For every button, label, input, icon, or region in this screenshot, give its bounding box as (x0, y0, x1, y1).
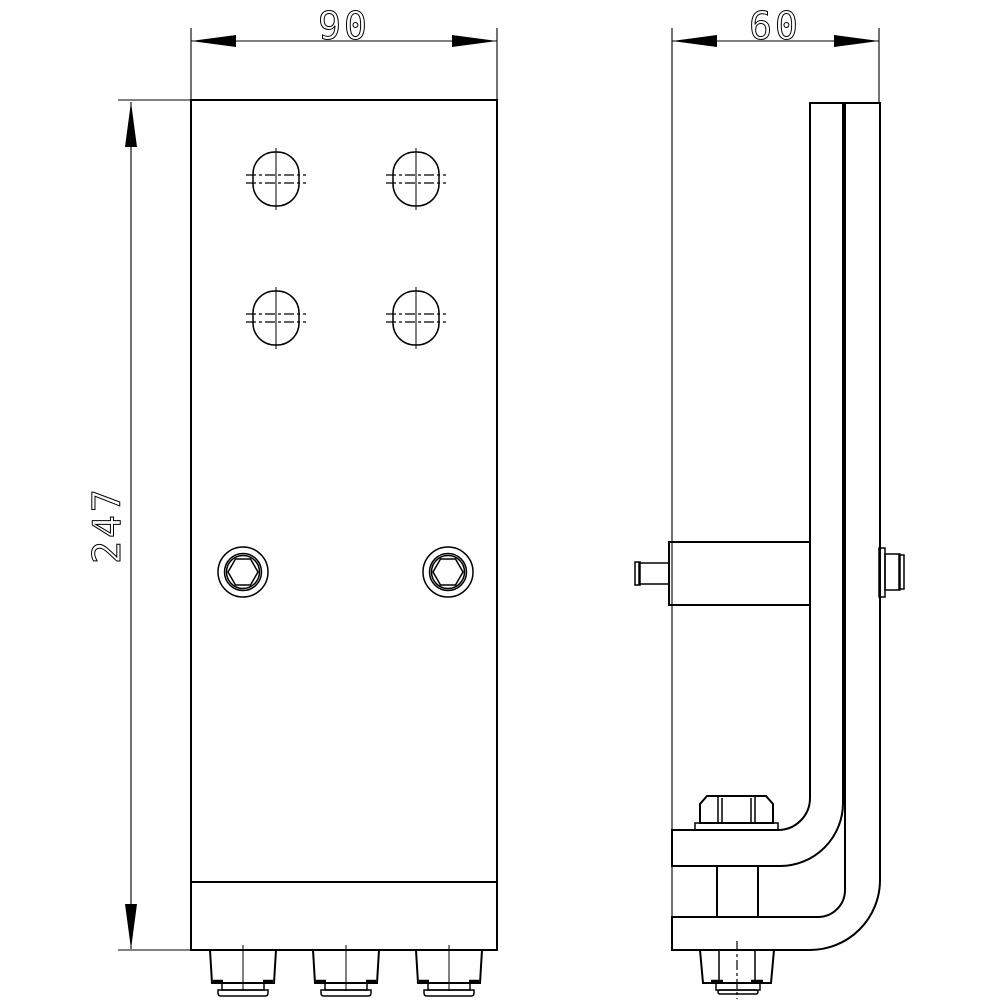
front-view (191, 100, 497, 996)
hex-bolt-front-1 (210, 945, 276, 996)
screw-tip-cap-left (635, 562, 640, 585)
slot-hole-top-right (386, 148, 446, 210)
dimension-width-90: 90 (191, 4, 497, 100)
dimension-width-label: 90 (318, 4, 370, 48)
arrowhead-right-icon (452, 35, 497, 47)
arrowhead-left-icon (191, 35, 236, 47)
screw-tip-left (639, 563, 669, 584)
socket-screw-left (218, 547, 268, 597)
front-view-outline (191, 100, 497, 950)
dimension-depth-60: 60 (672, 4, 879, 950)
screw-head-right (879, 548, 904, 597)
clamp-bolt-upper-head (695, 796, 778, 830)
side-view (635, 103, 904, 999)
arrowhead-left-icon (672, 35, 717, 47)
inner-bent-plate (672, 103, 843, 866)
dimension-depth-label: 60 (749, 4, 801, 48)
slot-hole-bottom-left (246, 287, 306, 349)
socket-screw-right (423, 547, 473, 597)
dimension-height-247: 247 (85, 100, 191, 950)
washer (695, 823, 778, 830)
hex-bolt-front-2 (313, 945, 379, 996)
dimension-height-label: 247 (85, 486, 129, 564)
arrowhead-down-icon (125, 904, 137, 949)
hex-bolt-front-3 (416, 945, 482, 996)
screw-boss-block (635, 542, 810, 605)
drawing-sheet: 90 60 247 (0, 0, 1000, 1000)
arrowhead-right-icon (834, 35, 879, 47)
arrowhead-up-icon (125, 102, 137, 147)
engineering-drawing: 90 60 247 (0, 0, 1000, 1000)
slot-hole-top-left (246, 148, 306, 210)
slot-hole-bottom-right (386, 287, 446, 349)
clamp-bolt-shank (717, 866, 758, 917)
